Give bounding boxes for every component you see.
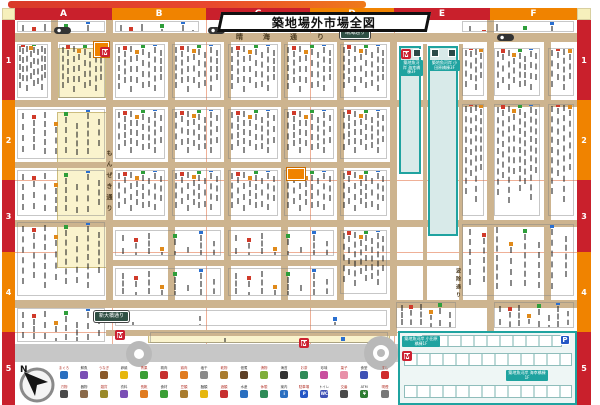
legend-label: ATM	[361, 385, 368, 389]
legend-item: 漬物	[255, 366, 274, 379]
legend-label: 衣料	[120, 385, 127, 389]
legend-label: 長靴	[140, 385, 147, 389]
legend-item: 案内 i	[275, 385, 294, 398]
tsukiji-outer-market-map: A B C D E F 1 2 3 4 5 1 2 3 4 5 晴海通り もんぜ…	[0, 0, 600, 405]
legend-item: 休憩	[255, 385, 274, 398]
legend-label: お茶	[301, 366, 308, 370]
legend-item: 喫煙	[375, 385, 394, 398]
row-band-left-4: 4	[2, 252, 15, 332]
legend-item: 佃煮	[235, 366, 254, 379]
bus-stop-icon	[497, 34, 514, 41]
shop-cluster	[17, 222, 105, 296]
row-band-left-1: 1	[2, 20, 15, 100]
legend-category-icon	[180, 390, 188, 398]
legend-category-icon	[220, 371, 228, 379]
legend-label: 青果	[140, 366, 147, 370]
shop-cluster	[115, 310, 387, 326]
legend-label: 菓子	[341, 366, 348, 370]
legend-item: 卵焼	[114, 366, 133, 379]
shop-cluster	[548, 104, 574, 216]
shop-cluster	[396, 302, 456, 328]
legend-item: 塩干	[194, 366, 213, 379]
metro-station-icon: M	[402, 351, 412, 361]
shop-cluster	[284, 44, 334, 98]
row-band-right-1: 1	[577, 20, 591, 100]
legend-row-1: まぐろ 鮮魚 うなぎ 卵焼 青果 精肉 鶏肉 塩干 乾物 佃煮	[54, 366, 394, 379]
legend-category-icon	[180, 371, 188, 379]
legend-item: 麺類	[194, 385, 213, 398]
legend-category-icon	[240, 371, 248, 379]
legend-row-2: 刃物 器物 雑貨 衣料 長靴 食材 豆類 麺類 酒類 水産	[54, 385, 394, 398]
legend-category-icon	[200, 390, 208, 398]
legend-label: 鶏肉	[180, 366, 187, 370]
legend-label: 卵焼	[120, 366, 127, 370]
shop-cluster	[172, 170, 221, 216]
shop-cluster	[228, 268, 334, 296]
legend-category-icon	[280, 371, 288, 379]
shop-cluster	[172, 44, 221, 98]
legend-label: 酒類	[221, 385, 228, 389]
legend-label: 交番	[341, 385, 348, 389]
legend-label: 精肉	[160, 366, 167, 370]
shop-cluster	[17, 170, 105, 216]
legend-item: 交番	[335, 385, 354, 398]
column-header-b: B	[112, 8, 206, 20]
row-band-right-2: 2	[577, 100, 591, 180]
legend-item: まぐろ	[54, 366, 73, 379]
grid-corner-tl	[2, 8, 15, 20]
legend-item: 鶏肉	[174, 366, 193, 379]
bus-stop-icon	[54, 27, 71, 34]
shop-cluster	[228, 170, 278, 216]
street-name-monzeki: もんぜき通り	[104, 150, 113, 216]
column-header-a: A	[15, 8, 112, 20]
legend-category-icon	[340, 390, 348, 398]
legend-item: 珍味	[315, 366, 334, 379]
legend-item: うなぎ	[94, 366, 113, 379]
legend-label: 器物	[80, 385, 87, 389]
building-uogashi-odawara	[428, 46, 458, 236]
legend-category-icon	[220, 390, 228, 398]
shop-cluster	[115, 109, 165, 159]
legend-label: 食堂	[361, 366, 368, 370]
shop-cluster	[284, 109, 334, 159]
shop-cluster	[115, 170, 165, 216]
legend-label: 乾物	[221, 366, 228, 370]
stall-row	[422, 335, 562, 347]
shop-cluster	[494, 104, 540, 216]
page-top-bar	[8, 1, 366, 8]
shop-cluster	[17, 308, 105, 342]
shop-cluster	[462, 104, 484, 216]
shop-cluster	[340, 170, 387, 216]
legend-item: 食堂	[355, 366, 374, 379]
street-v	[390, 36, 397, 336]
legend-category-icon: i	[280, 390, 288, 398]
shop-cluster	[115, 44, 165, 98]
compass-north-arrow: N	[14, 361, 58, 405]
row-band-right-3: 3	[577, 180, 591, 252]
legend-category-icon	[160, 390, 168, 398]
map-title: 築地場外市場全図	[272, 14, 376, 31]
shop-cluster	[115, 21, 199, 32]
legend-label: 案内	[281, 385, 288, 389]
legend-item: 海苔	[275, 366, 294, 379]
row-band-left-2: 2	[2, 100, 15, 180]
legend-item: 刃物	[54, 385, 73, 398]
legend-category-icon: WC	[320, 390, 328, 398]
legend-category-icon: ¥	[360, 390, 368, 398]
legend-item: 器物	[74, 385, 93, 398]
legend-label: 漬物	[261, 366, 268, 370]
row-band-left-3: 3	[2, 180, 15, 252]
legend-category-icon	[100, 390, 108, 398]
legend-label: 休憩	[261, 385, 268, 389]
legend-category-icon	[260, 371, 268, 379]
street-name-harumi: 晴海通り	[236, 33, 344, 42]
legend-item: 衣料	[114, 385, 133, 398]
legend-category-icon	[260, 390, 268, 398]
legend-item: 長靴	[134, 385, 153, 398]
shop-cluster	[462, 48, 484, 96]
facility-icon	[413, 49, 421, 57]
legend-item: 酒類	[215, 385, 234, 398]
map-title-banner: 築地場外市場全図	[217, 12, 431, 32]
legend-item: 菓子	[335, 366, 354, 379]
legend-item: 食材	[154, 385, 173, 398]
grid-corner-tr	[577, 8, 591, 20]
legend-category-icon	[140, 390, 148, 398]
legend-label: 珍味	[321, 366, 328, 370]
legend-label: 雑貨	[100, 385, 107, 389]
legend-label: 鮮魚	[80, 366, 87, 370]
stall-row	[404, 385, 572, 398]
metro-station-icon: M	[115, 330, 125, 340]
legend-category-icon	[320, 371, 328, 379]
legend-label: 塩干	[201, 366, 208, 370]
legend-label: 喫煙	[381, 385, 388, 389]
building-label: 築地魚河岸 海幸橋棟1F	[506, 370, 548, 381]
road-plate-shinohashi: 新大橋通り	[94, 311, 129, 322]
shop-cluster	[340, 109, 387, 159]
parking-icon: P	[560, 335, 570, 345]
shop-cluster	[494, 48, 540, 96]
legend-label: 佃煮	[241, 366, 248, 370]
legend-label: 駐車場	[299, 385, 309, 389]
legend-label: まぐろ	[58, 366, 68, 370]
shop-cluster	[172, 109, 221, 159]
shop-cluster	[150, 332, 388, 343]
legend-item: 青果	[134, 366, 153, 379]
legend-category-icon	[340, 371, 348, 379]
metro-station-icon: M	[299, 338, 309, 348]
legend-item: 水産	[235, 385, 254, 398]
legend-label: 食材	[160, 385, 167, 389]
legend-category-icon	[60, 371, 68, 379]
legend-category-icon	[140, 371, 148, 379]
legend-category-icon	[60, 390, 68, 398]
legend-category-icon	[240, 390, 248, 398]
legend-category-icon	[360, 371, 368, 379]
legend-item: お茶	[295, 366, 314, 379]
facility-icon	[431, 49, 439, 57]
legend-item: 精肉	[154, 366, 173, 379]
building-label: 築地魚河岸 小田原橋棟1F	[402, 336, 440, 347]
legend-category-icon	[100, 371, 108, 379]
highlight-chip	[287, 168, 305, 180]
shop-cluster	[228, 230, 334, 256]
legend-item: ATM ¥	[355, 385, 374, 398]
shop-cluster	[17, 44, 48, 98]
stall-row	[404, 353, 572, 366]
metro-station-icon: M	[401, 49, 411, 59]
row-band-right-4: 4	[577, 252, 591, 332]
legend-item: 雑貨	[94, 385, 113, 398]
legend-label: すし	[381, 366, 388, 370]
legend-category-icon: P	[300, 390, 308, 398]
legend-item: トイレ WC	[315, 385, 334, 398]
shop-cluster	[494, 302, 574, 328]
shop-cluster	[340, 230, 387, 294]
legend-label: トイレ	[319, 385, 329, 389]
legend-item: 豆類	[174, 385, 193, 398]
legend-label: 刃物	[60, 385, 67, 389]
legend-label: うなぎ	[99, 366, 109, 370]
legend-category-icon	[381, 371, 389, 379]
street-h	[15, 162, 392, 168]
legend-item: すし	[375, 366, 394, 379]
building-label: 築地魚河岸 小田原橋棟3F	[429, 60, 460, 71]
legend-category-icon	[200, 371, 208, 379]
street-v	[423, 44, 427, 300]
shop-cluster	[340, 44, 387, 98]
shop-cluster	[115, 268, 221, 296]
legend-label: 豆類	[180, 385, 187, 389]
legend-category-icon	[80, 371, 88, 379]
metro-station-icon: M	[100, 47, 110, 57]
column-header-f: F	[490, 8, 577, 20]
svg-text:N: N	[20, 365, 28, 375]
legend-label: 海苔	[281, 366, 288, 370]
building-label: 築地魚河岸 海幸橋棟3F	[400, 60, 423, 76]
legend-category-icon	[120, 371, 128, 379]
facility-icon	[448, 49, 456, 57]
shop-cluster	[462, 21, 574, 32]
shop-cluster	[228, 109, 278, 159]
shop-cluster	[115, 230, 221, 256]
roundabout	[126, 341, 152, 367]
legend-label: 水産	[241, 385, 248, 389]
legend-category-icon	[300, 371, 308, 379]
legend-item: 乾物	[215, 366, 234, 379]
shop-cluster	[548, 48, 574, 96]
street-name-namiyoke: 波除通り	[455, 268, 462, 300]
building-uogashi-1f-complex: 築地魚河岸 小田原橋棟1F 築地魚河岸 海幸橋棟1F M P	[398, 331, 577, 405]
shop-cluster	[228, 44, 278, 98]
legend-item: 鮮魚	[74, 366, 93, 379]
legend-category-icon	[381, 390, 389, 398]
legend-category-icon	[120, 390, 128, 398]
legend-category-icon	[160, 371, 168, 379]
legend-item: 駐車場 P	[295, 385, 314, 398]
row-band-right-5: 5	[577, 332, 591, 405]
legend-category-icon	[80, 390, 88, 398]
legend-label: 麺類	[201, 385, 208, 389]
shop-cluster	[17, 109, 105, 159]
shop-cluster	[462, 224, 574, 296]
